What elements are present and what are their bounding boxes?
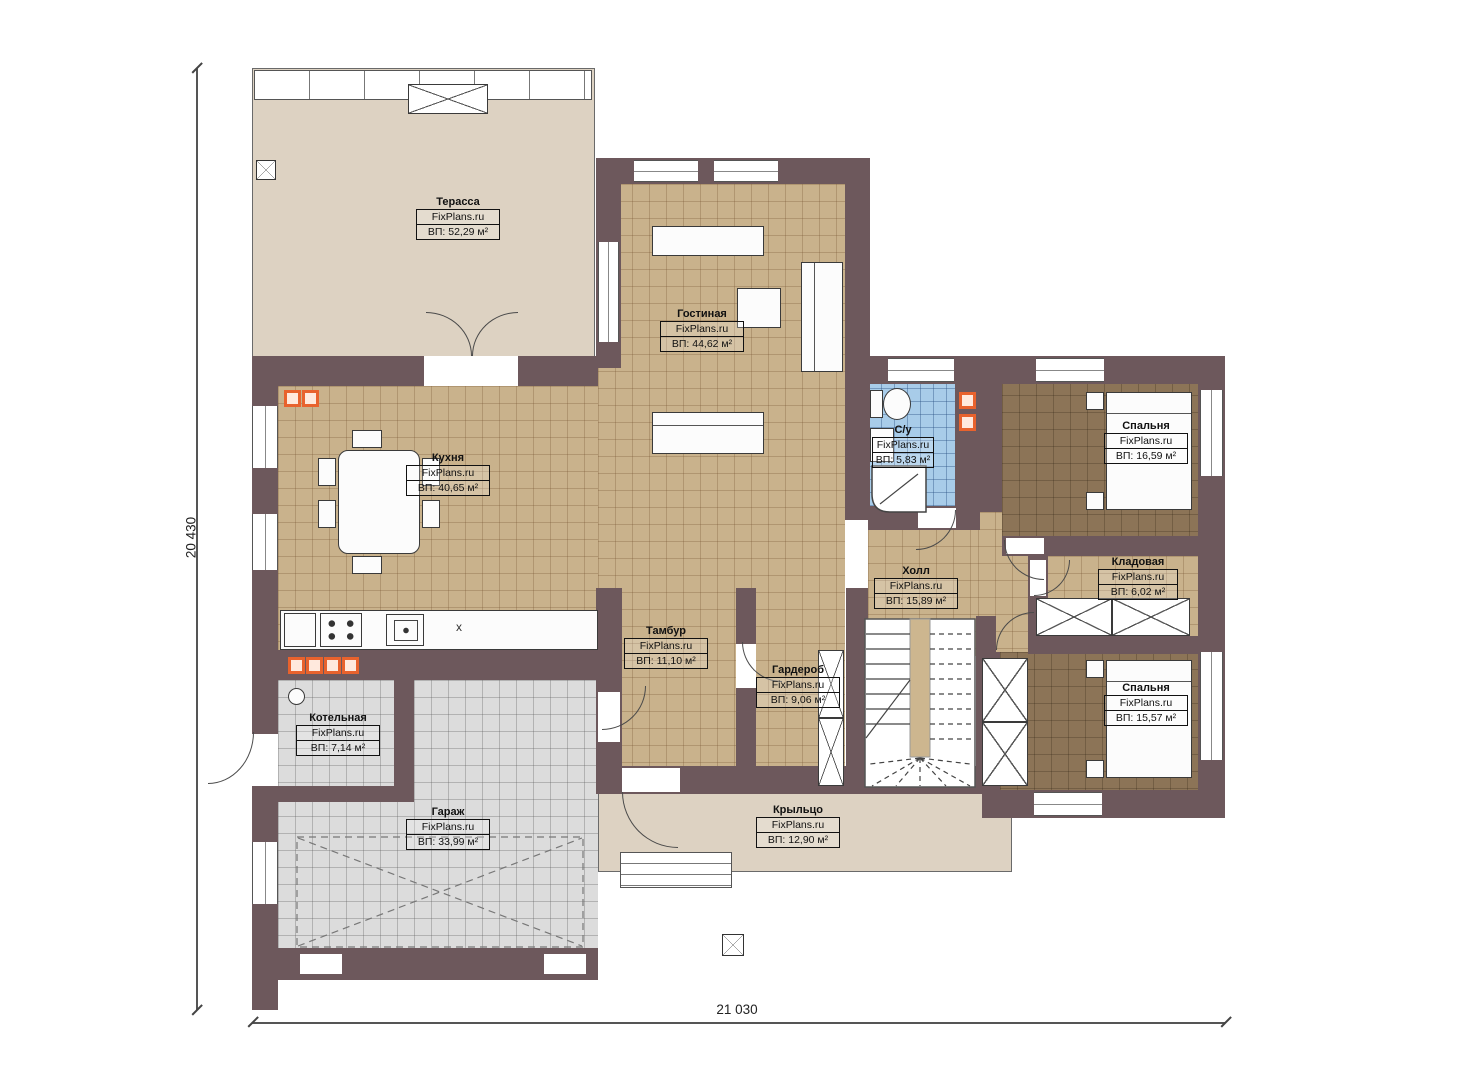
room-name: Гостиная — [660, 308, 744, 320]
window — [1034, 792, 1102, 816]
vent-marker — [959, 414, 976, 431]
room-area: ВП: 15,89 м² — [875, 594, 957, 608]
chair — [352, 556, 382, 574]
room-name: Спальня — [1104, 682, 1188, 694]
garage-cross — [296, 836, 584, 948]
wardrobe-unit — [818, 718, 844, 786]
staircase — [864, 618, 976, 788]
window — [252, 842, 278, 904]
room-label-bathroom: С/у FixPlans.ru ВП: 5,83 м² — [872, 424, 934, 468]
window — [1200, 652, 1223, 760]
room-name: Спальня — [1104, 420, 1188, 432]
sofa-bottom — [652, 412, 764, 454]
room-name: Гараж — [406, 806, 490, 818]
brand-watermark: FixPlans.ru — [407, 820, 489, 835]
room-name: Кухня — [406, 452, 490, 464]
door-opening-terrace — [424, 356, 518, 386]
room-label-bedroom2: Спальня FixPlans.ru ВП: 15,57 м² — [1104, 682, 1188, 726]
room-label-boiler: Котельная FixPlans.ru ВП: 7,14 м² — [296, 712, 380, 756]
vent-marker — [342, 657, 359, 674]
wall-boiler-south — [252, 786, 414, 802]
room-area: ВП: 15,57 м² — [1105, 711, 1187, 725]
room-label-wardrobe: Гардероб FixPlans.ru ВП: 9,06 м² — [756, 664, 840, 708]
toilet-tank — [870, 390, 883, 418]
shower — [870, 464, 928, 514]
window — [634, 160, 698, 182]
window — [888, 358, 954, 382]
room-label-living: Гостиная FixPlans.ru ВП: 44,62 м² — [660, 308, 744, 352]
sofa-right — [801, 262, 843, 372]
vent-marker — [288, 657, 305, 674]
room-label-garage: Гараж FixPlans.ru ВП: 33,99 м² — [406, 806, 490, 850]
room-name: Крыльцо — [756, 804, 840, 816]
floor-plan: x — [0, 0, 1473, 1080]
beam-hatch — [408, 84, 488, 114]
dimension-line-bottom — [252, 1022, 1225, 1024]
chair — [318, 500, 336, 528]
room-name: Гардероб — [756, 664, 840, 676]
room-area: ВП: 12,90 м² — [757, 833, 839, 847]
brand-watermark: FixPlans.ru — [297, 726, 379, 741]
nightstand — [1086, 760, 1104, 778]
porch-steps — [620, 852, 732, 888]
brand-watermark: FixPlans.ru — [873, 438, 933, 453]
post-marker — [256, 160, 276, 180]
room-label-terrace: Терасса FixPlans.ru ВП: 52,29 м² — [416, 196, 500, 240]
brand-watermark: FixPlans.ru — [757, 678, 839, 693]
door-opening-garage1 — [300, 954, 342, 974]
brand-watermark: FixPlans.ru — [407, 466, 489, 481]
brand-watermark: FixPlans.ru — [417, 210, 499, 225]
room-label-storage: Кладовая FixPlans.ru ВП: 6,02 м² — [1098, 556, 1178, 600]
wardrobe-unit — [982, 722, 1028, 786]
room-name: С/у — [872, 424, 934, 436]
wardrobe-unit — [1036, 598, 1112, 636]
window — [1200, 390, 1223, 476]
vent-marker — [959, 392, 976, 409]
room-area: ВП: 9,06 м² — [757, 693, 839, 707]
window — [252, 406, 278, 468]
window — [1036, 358, 1104, 382]
tv-console — [652, 226, 764, 256]
wall-storage-south — [1028, 636, 1198, 654]
vent-marker — [324, 657, 341, 674]
room-area: ВП: 5,83 м² — [873, 453, 933, 467]
wardrobe-unit — [1112, 598, 1190, 636]
toilet-bowl — [883, 388, 911, 420]
nightstand — [1086, 660, 1104, 678]
room-area: ВП: 33,99 м² — [407, 835, 489, 849]
room-label-bedroom1: Спальня FixPlans.ru ВП: 16,59 м² — [1104, 420, 1188, 464]
room-area: ВП: 40,65 м² — [407, 481, 489, 495]
brand-watermark: FixPlans.ru — [625, 639, 707, 654]
chair — [422, 500, 440, 528]
kitchen-sink — [386, 614, 424, 646]
room-area: ВП: 16,59 м² — [1105, 449, 1187, 463]
room-name: Котельная — [296, 712, 380, 724]
dimension-left-value: 20 430 — [184, 493, 199, 583]
room-area: ВП: 44,62 м² — [661, 337, 743, 351]
window — [252, 514, 278, 570]
door-opening-garage2 — [544, 954, 586, 974]
dimension-bottom-value: 21 030 — [692, 1002, 782, 1017]
brand-watermark: FixPlans.ru — [1105, 696, 1187, 711]
stove — [320, 613, 362, 647]
chair — [318, 458, 336, 486]
vent-marker — [284, 390, 301, 407]
room-label-porch: Крыльцо FixPlans.ru ВП: 12,90 м² — [756, 804, 840, 848]
wall-living-east — [845, 158, 870, 520]
room-area: ВП: 6,02 м² — [1099, 585, 1177, 599]
room-name: Кладовая — [1098, 556, 1178, 568]
room-name: Терасса — [416, 196, 500, 208]
door-opening-boiler — [252, 734, 278, 786]
brand-watermark: FixPlans.ru — [875, 579, 957, 594]
room-name: Тамбур — [624, 625, 708, 637]
wall-wing-south — [982, 790, 1225, 818]
vent-marker — [306, 657, 323, 674]
window — [598, 242, 619, 342]
brand-watermark: FixPlans.ru — [661, 322, 743, 337]
window — [714, 160, 778, 182]
fridge — [284, 613, 316, 647]
nightstand — [1086, 392, 1104, 410]
brand-watermark: FixPlans.ru — [1099, 570, 1177, 585]
post-marker — [722, 934, 744, 956]
room-area: ВП: 7,14 м² — [297, 741, 379, 755]
brand-watermark: FixPlans.ru — [757, 818, 839, 833]
wall-boiler-east — [394, 650, 414, 788]
room-area: ВП: 11,10 м² — [625, 654, 707, 668]
door-arc — [208, 732, 254, 784]
sink-mark: x — [456, 620, 462, 634]
brand-watermark: FixPlans.ru — [1105, 434, 1187, 449]
door-opening-entry — [622, 768, 680, 792]
wardrobe-unit — [982, 658, 1028, 722]
room-area: ВП: 52,29 м² — [417, 225, 499, 239]
room-label-tambour: Тамбур FixPlans.ru ВП: 11,10 м² — [624, 625, 708, 669]
nightstand — [1086, 492, 1104, 510]
vent-marker — [302, 390, 319, 407]
sink-basin — [394, 620, 418, 641]
room-label-hall: Холл FixPlans.ru ВП: 15,89 м² — [874, 565, 958, 609]
room-label-kitchen: Кухня FixPlans.ru ВП: 40,65 м² — [406, 452, 490, 496]
boiler-equipment — [288, 688, 305, 705]
chair — [352, 430, 382, 448]
room-name: Холл — [874, 565, 958, 577]
wall-bedroom1-west — [978, 378, 1002, 512]
